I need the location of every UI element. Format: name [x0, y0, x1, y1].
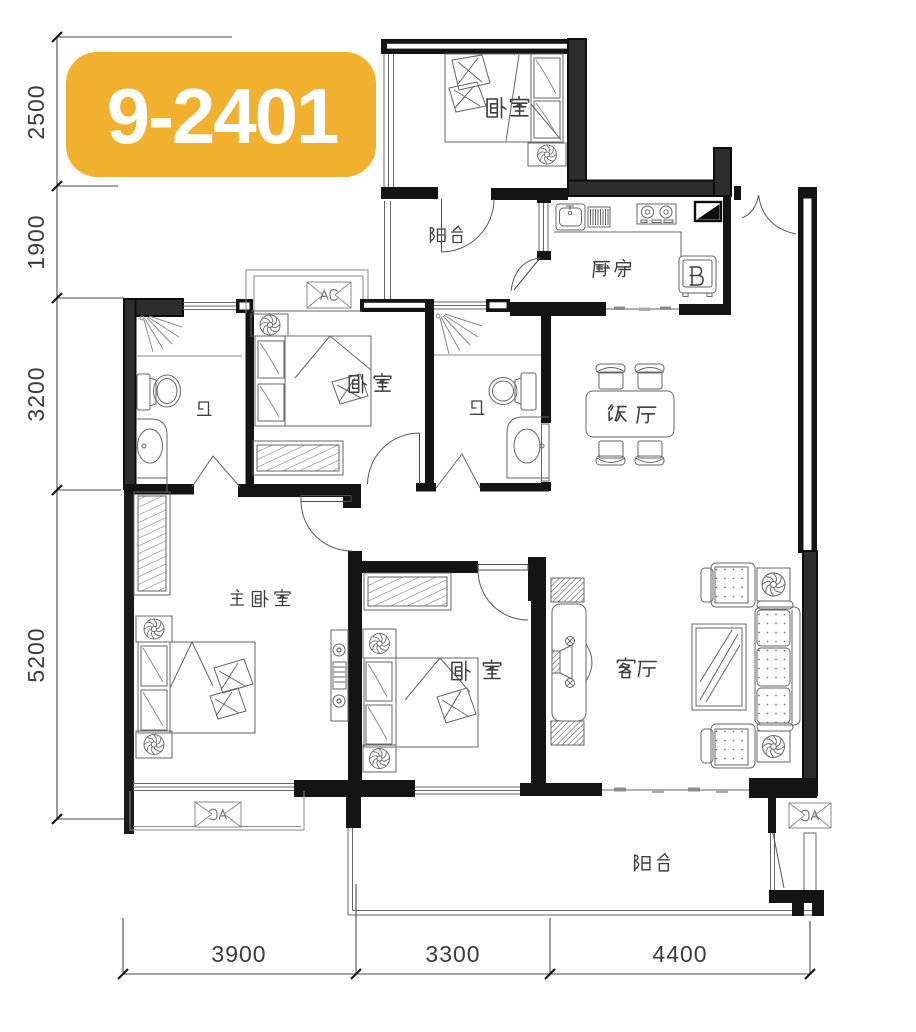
svg-text:4400: 4400: [652, 941, 707, 967]
svg-text:2500: 2500: [23, 84, 49, 139]
svg-text:3900: 3900: [211, 941, 266, 967]
svg-text:3200: 3200: [23, 366, 49, 421]
svg-text:3300: 3300: [425, 941, 480, 967]
svg-text:9-2401: 9-2401: [107, 72, 338, 160]
svg-text:5200: 5200: [23, 627, 49, 682]
svg-text:1900: 1900: [23, 214, 49, 269]
